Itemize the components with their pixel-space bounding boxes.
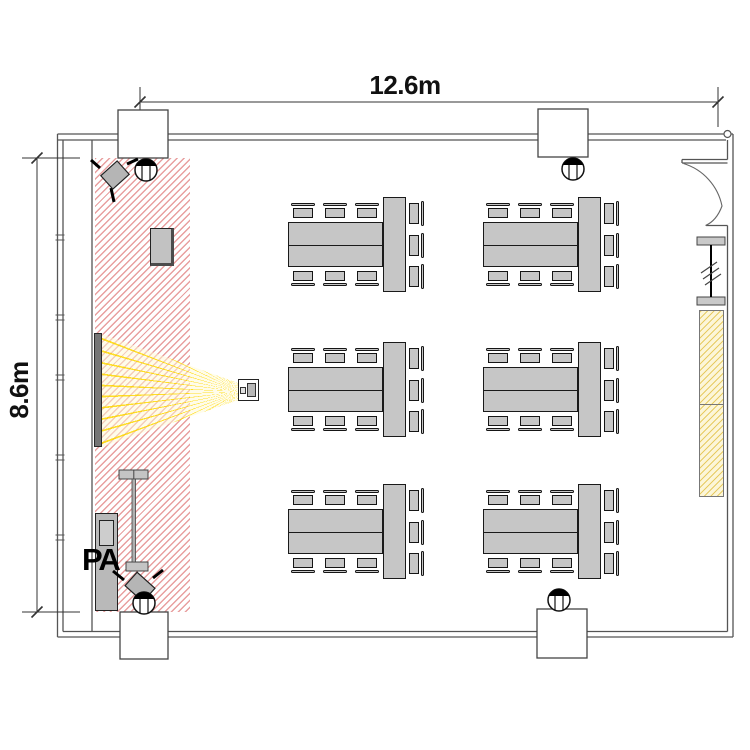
chair: [323, 203, 349, 220]
chair-back: [550, 203, 574, 206]
chair-seat: [520, 271, 540, 281]
chair-back: [355, 490, 379, 493]
chair-back: [323, 490, 347, 493]
projector-body: [247, 383, 256, 397]
chair-back: [355, 203, 379, 206]
chair-seat: [293, 558, 313, 568]
chair-seat: [488, 495, 508, 505]
chair: [602, 346, 619, 373]
floor-plan: 12.6m 8.6m PA: [0, 0, 750, 750]
chair-seat: [604, 411, 614, 432]
height-value: 8.6m: [4, 361, 34, 418]
chair-back: [486, 203, 510, 206]
door-icon: [684, 131, 732, 226]
chair-back: [291, 348, 315, 351]
chair-back: [421, 346, 424, 371]
chair-back: [616, 520, 619, 545]
chair: [323, 556, 349, 573]
column: [118, 110, 168, 158]
table: [383, 197, 406, 292]
table-divider: [484, 245, 577, 246]
chair-seat: [325, 208, 345, 218]
table-divider: [289, 390, 382, 391]
chair-back: [616, 378, 619, 403]
chair-seat: [604, 266, 614, 287]
projection-screen: [94, 333, 102, 447]
chair: [323, 490, 349, 507]
chair: [323, 414, 349, 431]
chair-seat: [520, 558, 540, 568]
chair-seat: [409, 348, 419, 369]
chair-seat: [552, 353, 572, 363]
chair: [291, 414, 317, 431]
chair: [407, 233, 424, 260]
chair-back: [616, 346, 619, 371]
chair-seat: [488, 416, 508, 426]
chair-seat: [552, 416, 572, 426]
chair-back: [323, 428, 347, 431]
chair-back: [550, 428, 574, 431]
chair: [407, 551, 424, 578]
chair: [486, 348, 512, 365]
chair-seat: [325, 558, 345, 568]
chair: [486, 556, 512, 573]
table: [383, 484, 406, 579]
table-divider: [289, 245, 382, 246]
chair: [602, 378, 619, 405]
chair: [602, 488, 619, 515]
chair: [291, 556, 317, 573]
chair: [407, 346, 424, 373]
chair-seat: [293, 495, 313, 505]
chair: [550, 269, 576, 286]
chair: [291, 269, 317, 286]
chair-seat: [409, 490, 419, 511]
chair: [355, 556, 381, 573]
chair-seat: [488, 558, 508, 568]
chair: [407, 264, 424, 291]
chair-back: [323, 283, 347, 286]
chair: [550, 556, 576, 573]
chair-back: [486, 283, 510, 286]
pa-label: PA: [82, 542, 119, 578]
chair: [291, 348, 317, 365]
chair-seat: [604, 490, 614, 511]
chair-seat: [604, 348, 614, 369]
chair-seat: [357, 271, 377, 281]
chair-seat: [409, 522, 419, 543]
chair: [550, 203, 576, 220]
table: [578, 484, 601, 579]
chair: [407, 520, 424, 547]
chair-seat: [604, 553, 614, 574]
chair-seat: [325, 271, 345, 281]
chair-back: [616, 233, 619, 258]
chair: [407, 201, 424, 228]
chair-back: [616, 488, 619, 513]
table: [483, 367, 578, 412]
table: [288, 509, 383, 554]
chair-seat: [604, 235, 614, 256]
side-counter: [699, 310, 724, 497]
table: [483, 222, 578, 267]
chair-seat: [357, 495, 377, 505]
column: [537, 609, 587, 658]
chair-back: [486, 428, 510, 431]
counter-divider: [700, 404, 723, 405]
chair-back: [550, 283, 574, 286]
chair-back: [518, 570, 542, 573]
chair-seat: [357, 416, 377, 426]
ceiling-speaker-icon: [548, 589, 570, 611]
chair-back: [291, 570, 315, 573]
chair: [602, 409, 619, 436]
chair: [550, 414, 576, 431]
chair-back: [518, 203, 542, 206]
chair: [518, 269, 544, 286]
table: [288, 367, 383, 412]
chair: [323, 348, 349, 365]
chair-back: [616, 264, 619, 289]
chair: [355, 269, 381, 286]
table: [383, 342, 406, 437]
chair-seat: [520, 208, 540, 218]
chair: [486, 203, 512, 220]
chair: [355, 203, 381, 220]
chair-back: [291, 490, 315, 493]
chair-back: [323, 570, 347, 573]
chair-seat: [520, 495, 540, 505]
chair-back: [355, 348, 379, 351]
chair-back: [616, 201, 619, 226]
chair-back: [486, 348, 510, 351]
width-value: 12.6m: [369, 70, 440, 100]
chair-seat: [488, 353, 508, 363]
chair-seat: [488, 271, 508, 281]
chair-back: [486, 570, 510, 573]
chair-seat: [552, 208, 572, 218]
chair: [518, 203, 544, 220]
chair: [550, 490, 576, 507]
partition-rail: [697, 237, 725, 305]
chair-back: [323, 348, 347, 351]
chair-back: [291, 283, 315, 286]
chair-seat: [409, 553, 419, 574]
chair: [602, 264, 619, 291]
chair-back: [421, 551, 424, 576]
table-divider: [484, 390, 577, 391]
table-divider: [484, 532, 577, 533]
chair-seat: [293, 353, 313, 363]
chair: [602, 551, 619, 578]
chair-seat: [552, 495, 572, 505]
chair-back: [550, 570, 574, 573]
chair: [291, 203, 317, 220]
chair: [518, 348, 544, 365]
column: [538, 109, 588, 157]
chair: [602, 520, 619, 547]
chair-back: [421, 233, 424, 258]
chair-back: [323, 203, 347, 206]
chair-back: [518, 283, 542, 286]
chair: [518, 556, 544, 573]
chair-back: [421, 488, 424, 513]
chair-seat: [409, 380, 419, 401]
projector-lens-icon: [240, 387, 246, 394]
chair-back: [355, 283, 379, 286]
chair: [602, 201, 619, 228]
chair-seat: [409, 266, 419, 287]
chair-back: [616, 409, 619, 434]
chair-back: [421, 264, 424, 289]
chair-seat: [488, 208, 508, 218]
chair-seat: [552, 558, 572, 568]
dimension-width-label: 12.6m: [340, 70, 470, 101]
chair-seat: [293, 271, 313, 281]
chair-back: [486, 490, 510, 493]
projector: [238, 379, 259, 401]
chair-seat: [604, 522, 614, 543]
table: [578, 197, 601, 292]
chair-back: [421, 520, 424, 545]
chair: [355, 414, 381, 431]
chair-back: [291, 428, 315, 431]
chair-seat: [520, 353, 540, 363]
chair-seat: [409, 411, 419, 432]
chair-seat: [325, 416, 345, 426]
chair-back: [355, 570, 379, 573]
chair: [291, 490, 317, 507]
chair-seat: [357, 208, 377, 218]
presenter-desk: [150, 228, 174, 266]
chair-seat: [409, 235, 419, 256]
chair-back: [421, 201, 424, 226]
chair-seat: [409, 203, 419, 224]
chair-back: [355, 428, 379, 431]
table: [483, 509, 578, 554]
chair-seat: [293, 416, 313, 426]
chair-seat: [552, 271, 572, 281]
chair-seat: [604, 380, 614, 401]
chair-back: [518, 428, 542, 431]
chair: [518, 490, 544, 507]
chair: [602, 233, 619, 260]
chair-seat: [604, 203, 614, 224]
chair-back: [616, 551, 619, 576]
chair: [550, 348, 576, 365]
chair: [355, 348, 381, 365]
chair-back: [550, 490, 574, 493]
window-ticks: [56, 235, 65, 540]
chair-back: [421, 409, 424, 434]
column: [120, 612, 168, 659]
chair: [407, 488, 424, 515]
chair-seat: [293, 208, 313, 218]
dimension-height-label: 8.6m: [4, 352, 32, 428]
chair: [407, 409, 424, 436]
chair-back: [518, 490, 542, 493]
chair-seat: [357, 558, 377, 568]
chair-back: [550, 348, 574, 351]
chair-seat: [325, 495, 345, 505]
chair-seat: [325, 353, 345, 363]
chair: [486, 414, 512, 431]
chair: [407, 378, 424, 405]
chair: [486, 490, 512, 507]
chair-back: [421, 378, 424, 403]
chair: [323, 269, 349, 286]
table: [578, 342, 601, 437]
chair-seat: [357, 353, 377, 363]
chair: [355, 490, 381, 507]
table-divider: [289, 532, 382, 533]
chair-back: [518, 348, 542, 351]
table: [288, 222, 383, 267]
chair: [518, 414, 544, 431]
chair: [486, 269, 512, 286]
chair-seat: [520, 416, 540, 426]
chair-back: [291, 203, 315, 206]
ceiling-speaker-icon: [562, 158, 584, 180]
